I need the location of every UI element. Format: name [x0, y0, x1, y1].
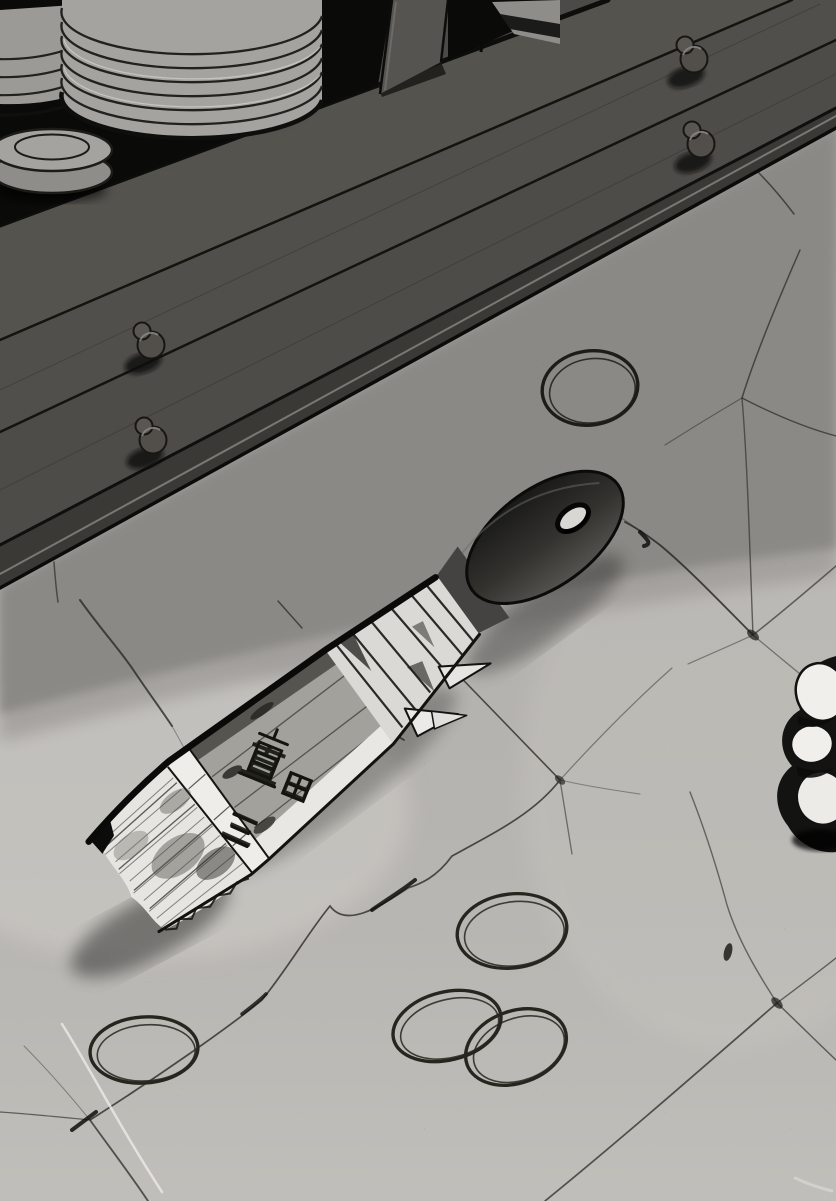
grain-overlay-light — [0, 0, 836, 1201]
manga-panel: 直 田 三 — [0, 0, 836, 1201]
manga-panel-canvas: 直 田 三 — [0, 0, 836, 1201]
